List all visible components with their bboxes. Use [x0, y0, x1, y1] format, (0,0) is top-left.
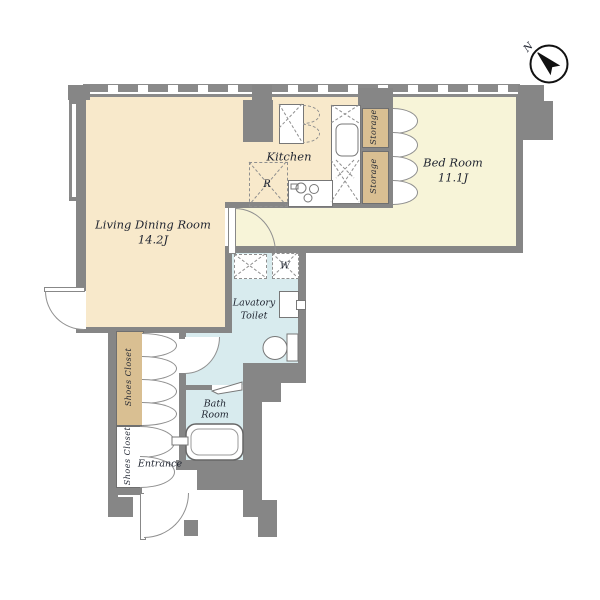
wall-porch-step [184, 520, 198, 536]
shoes-closet-door-arc [140, 426, 175, 458]
wall-porch-foot [258, 500, 277, 537]
living-dining-room-size: 14.2J [138, 234, 168, 246]
kitchen-cabinet [279, 104, 304, 144]
wall-entrance-stub [118, 497, 133, 517]
washing-machine-label: W [280, 261, 290, 271]
bedroom-hall-strip-floor [232, 208, 516, 246]
lavatory-label-line1: Lavatory [233, 298, 275, 308]
bedroom-size: 11.1J [438, 172, 468, 184]
living-dining-room-floor [86, 97, 225, 327]
bedroom-label: Bed Room [423, 157, 483, 169]
wall-block-a [243, 363, 306, 383]
stove [288, 180, 333, 207]
wall-ldr-south [76, 327, 232, 333]
balcony-door-swing [45, 291, 84, 330]
shoes-closet-upper-label: Shoes Closet [125, 348, 133, 406]
shoes-closet-door-arc [142, 402, 177, 426]
lavatory-label-line2: Toilet [241, 311, 268, 321]
wall-porch-north [197, 470, 243, 490]
shoes-closet-door-arc [142, 333, 177, 358]
bathroom-label-line2: Room [201, 410, 229, 420]
compass-north-label: N [522, 41, 535, 54]
water-heater-tab [296, 300, 306, 310]
wall-block-b [243, 383, 281, 402]
lavatory-cabinet-dashed [234, 254, 267, 279]
shoes-closet-door-arc [142, 356, 177, 381]
storage-bottom-label: Storage [370, 158, 378, 193]
wall-bath-south [176, 460, 262, 470]
top-wall-inner-line [83, 94, 520, 97]
window-rail [88, 85, 518, 92]
front-door-swing [144, 493, 189, 538]
left-window-cap-bottom [69, 197, 77, 201]
wall-entrance-south [108, 487, 142, 495]
wall-bath-lavatory-divider [186, 385, 212, 390]
pillar-kitchen [243, 100, 273, 142]
shoes-closet-door-arc [142, 379, 177, 404]
entrance-label: Entrance [138, 459, 182, 469]
compass-rose [531, 46, 568, 83]
storage-top-label: Storage [370, 109, 378, 144]
wall-corridor-east [179, 373, 186, 460]
left-window-line [69, 103, 72, 198]
refrigerator-label: R [263, 180, 271, 190]
wall-block-c [243, 402, 262, 460]
floor-plan: Living Dining Room 14.2J Kitchen Bed Roo… [0, 0, 600, 600]
left-window-cap-top [69, 100, 77, 104]
living-dining-room-label: Living Dining Room [95, 219, 211, 231]
kitchen-label: Kitchen [267, 151, 312, 163]
pillar-topright-b [544, 101, 553, 140]
shoes-closet-lower-label: Shoes Closet [124, 427, 132, 485]
bathroom-label-line1: Bath [204, 399, 227, 409]
kitchen-counter [331, 105, 361, 204]
wall-ldr-east [225, 248, 232, 333]
wall-east [516, 95, 523, 253]
